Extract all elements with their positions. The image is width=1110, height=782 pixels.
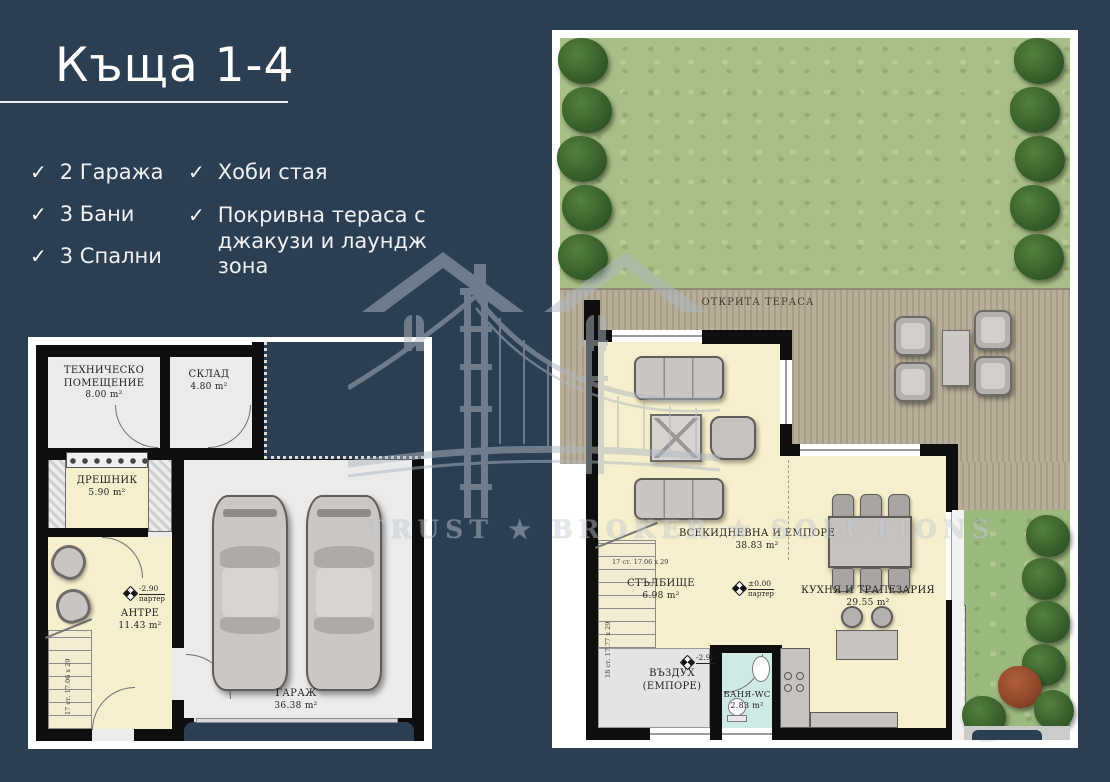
room-name: ГАРАЖ [241,688,351,701]
wall [586,330,612,342]
wall [702,330,792,344]
listing-slide: Къща 1-4 2 Гаража 3 Бани 3 Спални Хоби с… [0,0,1110,782]
room-label-wardrobe: ДРЕШНИК 5.90 m² [66,475,148,499]
bush [1014,38,1064,84]
room-area: 36.38 m² [241,701,351,712]
room-label-storage: СКЛАД 4.80 m² [166,369,252,393]
room-name-2: (ЕМПОРЕ) [620,681,724,694]
bush [558,234,608,280]
check-icon [30,244,47,268]
room-name: БАНЯ-WC [712,690,782,701]
car-windshield [314,546,375,568]
room-area: 6.98 m² [620,591,702,602]
room-area: 2.83 m² [712,701,782,711]
wall [48,528,148,537]
car-rear-window [314,617,373,635]
bush [557,136,607,182]
wall [946,456,958,512]
room-name: ОТКРИТА ТЕРАСА [668,297,848,310]
stove-burner [796,684,804,692]
dining-chair [888,494,910,518]
car-grill [317,509,372,517]
benchmark-icon [123,586,139,602]
wall [160,345,170,448]
toilet-tank [727,715,747,722]
terrace-chair [894,362,932,402]
feature-label: 3 Спални [60,244,162,270]
terrace-chair [894,316,932,356]
car-top-view [212,495,288,691]
stove-burner [784,684,792,692]
feature-label: 2 Гаража [60,160,164,186]
closet-hatch [148,452,172,532]
terrace-label: ОТКРИТА ТЕРАСА [668,297,848,310]
room-label-void: ВЪЗДУХ (ЕМПОРЕ) [620,668,724,693]
bath-sink [752,656,770,682]
room-name: ВЪЗДУХ [620,668,724,681]
page-title: Къща 1-4 [55,38,294,93]
wall [586,728,650,740]
feature-label: Покривна тераса с джакузи и лаундж зона [218,203,463,280]
floor-plan-basement: 17 ст. 17.06 х 29 -2.90 [28,337,432,749]
bush [1010,87,1060,133]
terrace-chair [974,356,1012,396]
feature-garages: 2 Гаража [30,160,180,186]
room-label-living: ВСЕКИДНЕВНА И ЕМПОРЕ 38.83 m² [672,528,842,552]
room-name: СКЛАД [166,369,252,382]
check-icon [188,203,205,227]
level-marker-void: -2.90 [682,654,715,668]
car-roof [316,568,372,617]
bridge-tower-leg [464,292,471,518]
room-name: ДРЕШНИК [66,475,148,488]
window [780,360,792,424]
bar-stool [871,606,893,628]
feature-baths: 3 Бани [30,202,180,228]
elevation-value: -2.90 [139,585,165,595]
check-icon [188,160,205,184]
car-grill [223,509,278,517]
room-area: 11.43 m² [100,621,180,632]
room-name: АНТРЕ [100,608,180,621]
level-marker-basement: -2.90 партер [125,585,165,603]
benchmark-icon [732,581,748,597]
bush [1026,601,1070,643]
sofa [634,356,724,400]
bush [1022,558,1066,600]
coffee-table [650,414,702,462]
exterior-cutout [264,342,424,459]
wall [36,345,268,357]
level-marker-ground: ±0.00 партер [734,580,774,598]
floor-name: партер [748,590,774,598]
room-label-garage: ГАРАЖ 36.38 m² [241,688,351,712]
dining-chair [860,494,882,518]
title-underline [0,101,288,103]
feature-bedrooms: 3 Спални [30,244,180,270]
dining-chair [832,494,854,518]
feature-label: 3 Бани [60,202,135,228]
wall [778,728,958,740]
stove-burner [784,672,792,680]
floor-name: партер [139,595,165,603]
stove-burner [796,672,804,680]
bush [1015,136,1065,182]
wall [586,330,598,740]
bush [1034,690,1074,730]
sofa [634,478,724,520]
room-area: 5.90 m² [66,488,148,499]
bush [562,185,612,231]
car-top-view [306,495,382,691]
room-area: 29.55 m² [798,598,938,609]
room-name: ВСЕКИДНЕВНА И ЕМПОРЕ [672,528,842,541]
stairs-dimension-label: 17 ст. 17.06 х 29 [64,659,72,715]
wall [252,342,264,460]
side-path [952,510,964,740]
elevation-value: ±0.00 [748,580,774,590]
armchair [710,416,756,460]
room-area: 38.83 m² [672,541,842,552]
window [612,330,702,342]
garden-lawn [560,38,1070,288]
car-rear-window [220,617,279,635]
wall [36,345,48,741]
bush [562,87,612,133]
terrace-table [942,330,970,386]
kitchen-island [836,630,898,660]
feature-hobby-room: Хоби стая [188,160,408,186]
stairs-dimension-label: 17 ст. 17.06 х 29 [612,558,668,566]
check-icon [30,160,47,184]
wall [36,729,92,741]
hanger-rail [66,452,148,468]
room-label-kitchen: КУХНЯ И ТРАПЕЗАРИЯ 29.55 m² [798,585,938,609]
room-area: 8.00 m² [48,390,160,401]
wall [920,444,958,456]
wall [780,444,800,456]
terrace-chair [974,310,1012,350]
room-area: 4.80 m² [166,382,252,393]
floor-plan-ground: ОТКРИТА ТЕРАСА [552,30,1078,748]
room-label-bath: БАНЯ-WC 2.83 m² [712,690,782,711]
room-name: СТЪЛБИЩЕ [620,578,702,591]
car-roof [222,568,278,617]
window [800,444,920,456]
room-name: КУХНЯ И ТРАПЕЗАРИЯ [798,585,938,598]
bush [558,38,608,84]
closet-hatch [48,452,66,532]
bush [1026,515,1070,557]
wall [134,729,176,741]
feature-label: Хоби стая [218,160,328,186]
wall [412,448,424,741]
driveway [184,722,414,741]
stairs-dimension-label: 18 ст. 17.77 х 29 [604,622,612,678]
car-windshield [220,546,281,568]
bush [1014,234,1064,280]
bar-stool [841,606,863,628]
chimney [474,264,486,298]
kitchen-counter [810,712,898,728]
bridge-tower-cap [460,288,492,295]
room-label-staircase: СТЪЛБИЩЕ 6.98 m² [620,578,702,602]
garage-door [196,718,398,723]
check-icon [30,202,47,226]
room-label-entry: АНТРЕ 11.43 m² [100,608,180,632]
bush [1010,185,1060,231]
terrace-deck-side [946,462,1070,510]
bridge-tower-leg [481,292,488,518]
feature-roof-terrace: Покривна тераса с джакузи и лаундж зона [188,203,468,280]
room-label-tech: ТЕХНИЧЕСКО ПОМЕЩЕНИЕ 8.00 m² [48,365,160,401]
path-curve [972,730,1042,740]
room-name: ТЕХНИЧЕСКО ПОМЕЩЕНИЕ [48,365,160,390]
elevation-value: -2.90 [696,654,715,664]
